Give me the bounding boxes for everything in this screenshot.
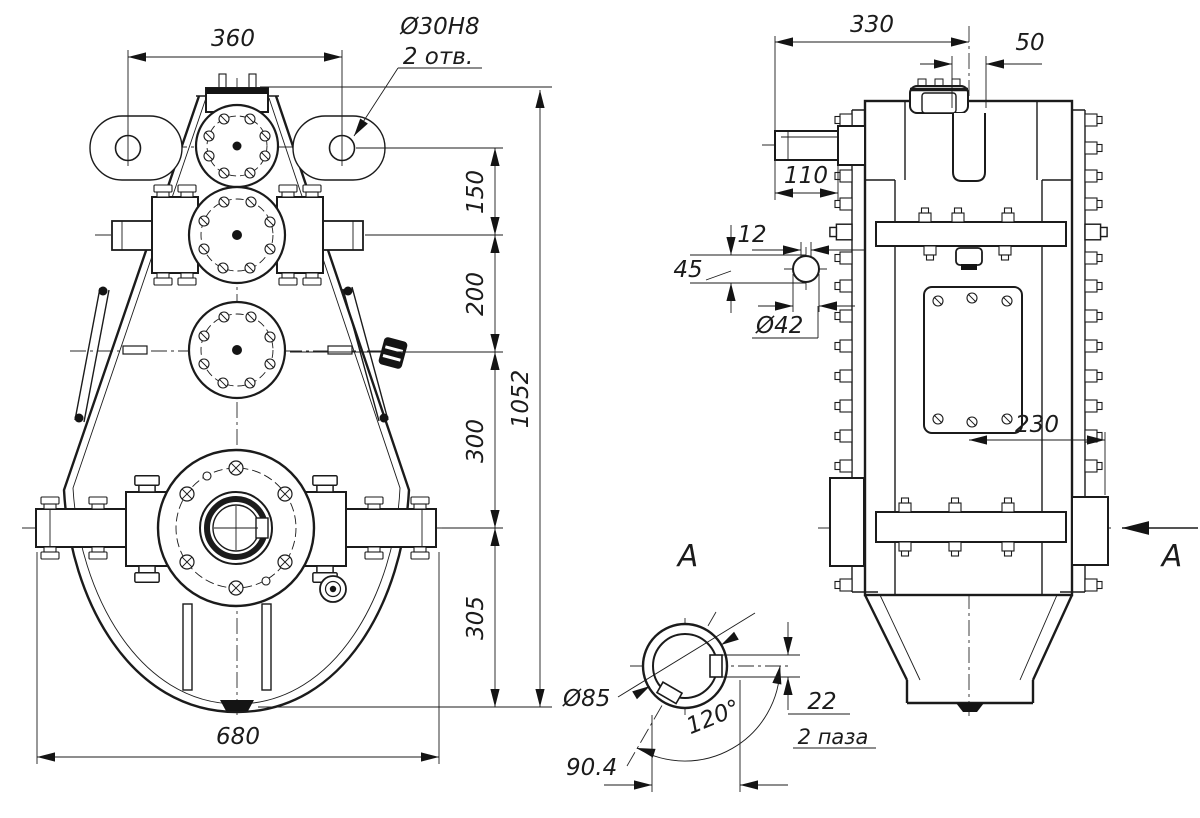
dim-hole-note: 2 отв. [403,44,473,70]
lower-flange-band [876,512,1066,542]
section-title: А [676,539,699,574]
dim-shaft-dia: Ø42 [755,313,803,339]
dim-slot-note: 2 паза [798,725,869,749]
input-side-block [830,478,864,566]
dim-h4: 305 [463,596,489,640]
dim-section-dia: Ø85 [562,686,610,712]
upper-flange-band [876,222,1066,246]
dim-h1: 150 [463,170,489,214]
inspection-cover [924,287,1022,433]
oil-dipstick-well [953,113,985,181]
dim-h3: 300 [463,419,489,463]
lifting-bracket [910,79,968,113]
dim-total-height: 1052 [508,370,534,429]
dim-hole: Ø30H8 [399,14,479,40]
view-arrow-label: А [1160,539,1183,574]
dim-shaft-length: 110 [784,163,828,189]
dim-slot: 22 [807,689,836,715]
dim-top-offset: 50 [1015,30,1044,56]
technical-drawing: 360 Ø30H8 2 отв. 150 200 300 305 1052 68… [0,0,1200,818]
dim-key-width: 12 [737,222,766,248]
keyway-1 [710,655,722,677]
dim-lower-offset: 230 [1015,412,1059,438]
dim-across: 90.4 [566,755,617,781]
grease-fitting [320,576,346,602]
dim-h2: 200 [463,272,489,316]
dim-key-height: 45 [673,257,702,283]
dim-width-bottom: 680 [216,724,260,750]
drawing-canvas: 360 Ø30H8 2 отв. 150 200 300 305 1052 68… [0,0,1200,818]
input-shaft [775,126,865,165]
dim-depth: 330 [850,12,894,38]
output-shaft-end [1072,497,1108,565]
drain-plug-front [220,700,254,711]
dim-width-top: 360 [211,26,255,52]
